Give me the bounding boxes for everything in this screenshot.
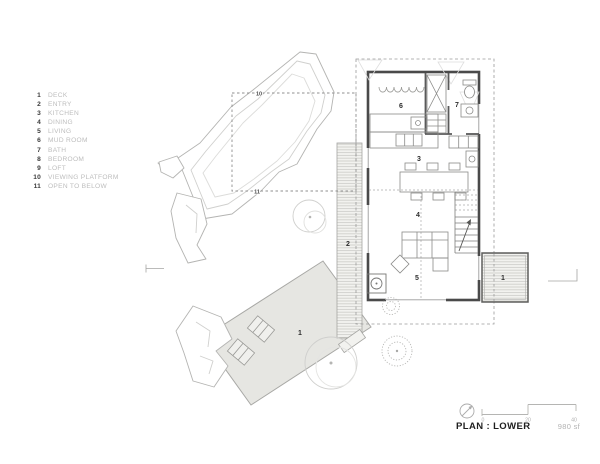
legend-item: 8BEDROOM	[28, 156, 119, 165]
legend-item-number: 9	[28, 165, 41, 172]
legend-item-number: 3	[28, 110, 41, 117]
legend-item-number: 11	[28, 183, 41, 190]
legend-item: 6MUD ROOM	[28, 137, 119, 146]
legend-item: 9LOFT	[28, 165, 119, 174]
legend-item-label: BEDROOM	[48, 156, 84, 163]
legend-item-number: 10	[28, 174, 41, 181]
legend-item: 3KITCHEN	[28, 110, 119, 119]
legend-item-label: DINING	[48, 119, 73, 126]
legend-item-label: VIEWING PLATFORM	[48, 174, 119, 181]
tree	[293, 200, 326, 233]
legend-item-number: 4	[28, 119, 41, 126]
main-deck-label: 1	[298, 330, 302, 337]
legend-item-number: 8	[28, 156, 41, 163]
side-deck-label: 1	[501, 275, 505, 282]
legend-item-label: LIVING	[48, 128, 71, 135]
rock-outcrop	[158, 52, 334, 263]
building-outline: 6 7 3 4 5	[358, 60, 482, 303]
legend-item-label: ENTRY	[48, 101, 72, 108]
legend-item: 7BATH	[28, 147, 119, 156]
open-to-below-label: 11	[254, 190, 260, 196]
legend-item-label: KITCHEN	[48, 110, 79, 117]
legend-item-number: 7	[28, 147, 41, 154]
title-block: PLAN : LOWER 980 sf	[456, 421, 580, 432]
legend-item: 1DECK	[28, 92, 119, 101]
legend-item-label: OPEN TO BELOW	[48, 183, 107, 190]
conifer-tree	[382, 298, 412, 367]
plan-title: PLAN : LOWER	[456, 421, 530, 432]
legend-item-label: LOFT	[48, 165, 66, 172]
entry-label: 2	[346, 241, 350, 248]
legend-item: 4DINING	[28, 119, 119, 128]
mudroom-label: 6	[399, 103, 403, 110]
area-label: 980 sf	[558, 422, 580, 431]
living-label: 5	[415, 275, 419, 282]
legend-item-number: 5	[28, 128, 41, 135]
legend: 1DECK 2ENTRY 3KITCHEN 4DINING 5LIVING 6M…	[28, 92, 119, 192]
legend-item-label: BATH	[48, 147, 66, 154]
kitchen-label: 3	[417, 156, 421, 163]
legend-item-label: MUD ROOM	[48, 137, 88, 144]
bath-label: 7	[455, 102, 459, 109]
north-arrow-icon	[460, 404, 474, 418]
entry-walkway	[337, 143, 366, 353]
side-deck: 1	[482, 253, 528, 302]
legend-item-number: 1	[28, 92, 41, 99]
plan-drawing: 10 11	[0, 0, 600, 464]
legend-item: 11OPEN TO BELOW	[28, 183, 119, 192]
legend-item-number: 6	[28, 137, 41, 144]
legend-item: 5LIVING	[28, 128, 119, 137]
dining-label: 4	[416, 212, 420, 219]
legend-item: 10VIEWING PLATFORM	[28, 174, 119, 183]
legend-item-label: DECK	[48, 92, 68, 99]
legend-item-number: 2	[28, 101, 41, 108]
platform-label: 10	[256, 92, 262, 98]
legend-item: 2ENTRY	[28, 101, 119, 110]
scale-bar	[482, 405, 576, 417]
floor-plan-sheet: 10 11	[0, 0, 600, 464]
